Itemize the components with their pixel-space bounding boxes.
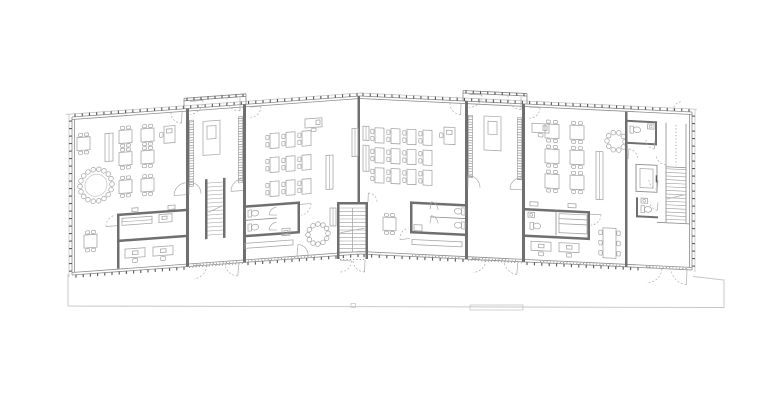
left-wing <box>66 85 363 288</box>
floor-plan-svg <box>0 0 780 406</box>
floor-plan-page <box>0 0 780 406</box>
right-wing <box>360 85 697 285</box>
